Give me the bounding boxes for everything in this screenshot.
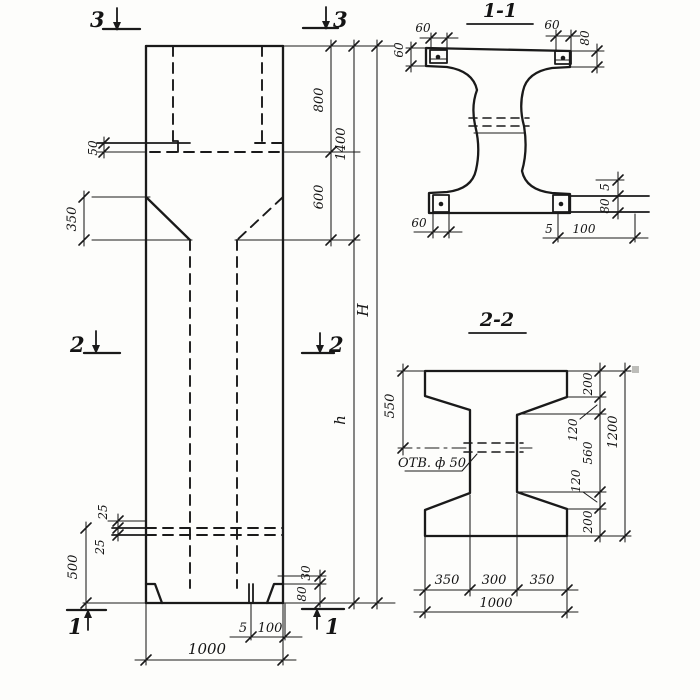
dim-foot-30: 30	[299, 565, 313, 581]
section-marker-1-left: 1	[67, 609, 106, 639]
dim-60-tip-left: 60	[392, 42, 406, 58]
section-2-2-dimension-lines	[398, 363, 630, 617]
hole-label: ОТВ. ф 50	[398, 456, 466, 471]
dim-100-bottom: 100	[573, 222, 596, 236]
section-2-2-title: 2-2	[479, 309, 514, 331]
hole-callout: ОТВ. ф 50	[398, 454, 477, 471]
marker-label: 1	[68, 614, 83, 639]
section-marker-3-right: 3	[303, 7, 348, 32]
marker-label: 1	[325, 614, 340, 639]
dim-total-H: H	[354, 303, 372, 318]
foot-boot-right	[267, 584, 283, 603]
dim-plate-100: 100	[258, 621, 283, 636]
dim-spacer-25-bottom: 25	[93, 539, 107, 555]
section-marker-3-left: 3	[90, 7, 140, 32]
dim-350-right: 350	[530, 573, 555, 588]
dim-200-top: 200	[581, 372, 595, 396]
section-marker-2-left: 2	[69, 331, 120, 357]
dim-300-mid: 300	[482, 573, 507, 588]
dim-width-1000: 1000	[188, 640, 227, 658]
dim-spacer-25-top: 25	[96, 504, 110, 520]
dim-haunch-350: 350	[65, 207, 80, 232]
section-2-2-outline	[425, 371, 567, 536]
dim-step-50: 50	[86, 140, 100, 156]
marker-label: 2	[69, 332, 85, 357]
dim-1200-total: 1200	[606, 415, 621, 448]
leader-120-top	[580, 405, 597, 419]
dim-top-total-1400: 1400	[334, 127, 349, 160]
section-1-1-hole-hidden	[469, 118, 529, 126]
dim-60-top-right: 60	[544, 18, 560, 32]
dim-200-bottom: 200	[581, 510, 595, 534]
dim-mid-600: 600	[312, 185, 327, 210]
haunch-right-edge-hidden	[237, 197, 283, 240]
section-1-1-title: 1-1	[483, 0, 517, 22]
dim-top-800: 800	[312, 88, 327, 113]
dim-plate-5: 5	[239, 621, 247, 636]
dim-120-top: 120	[566, 418, 580, 441]
dim-60-top-left: 60	[415, 21, 431, 35]
section-2-2-extension-lines	[397, 371, 631, 618]
dim-80-tip-right: 80	[578, 30, 592, 46]
section-marker-2-right: 2	[302, 332, 344, 357]
drawing-sheet: 50 350 800 600 1400 H h 25 25 500 30 80 …	[0, 0, 700, 700]
elevation-view: 50 350 800 600 1400 H h 25 25 500 30 80 …	[65, 7, 395, 665]
dim-120-bottom: 120	[569, 469, 583, 492]
section-1-1-outline	[426, 48, 570, 213]
dim-80-edge: 80	[598, 198, 612, 214]
elevation-hidden-lines	[146, 46, 283, 588]
scan-artifact	[632, 366, 639, 373]
dim-5-edge: 5	[598, 183, 612, 191]
dim-base-500: 500	[66, 555, 81, 580]
dim-5-bottom: 5	[545, 222, 553, 236]
section-2-2-view: 2-2 ОТВ. ф 50	[383, 309, 639, 618]
anchor-dot	[561, 56, 566, 61]
foot-boot-left	[146, 584, 162, 603]
drawing-canvas: 50 350 800 600 1400 H h 25 25 500 30 80 …	[0, 0, 700, 700]
dim-60-bottom-left: 60	[411, 216, 427, 230]
section-1-1-view: 1-1	[392, 0, 649, 243]
dim-560-mid: 560	[581, 441, 595, 464]
section-2-2-hole-hidden	[464, 443, 523, 452]
haunch-left-edge	[146, 197, 190, 240]
section-marker-1-right: 1	[302, 608, 344, 639]
anchor-dot	[439, 202, 444, 207]
dim-foot-80: 80	[295, 586, 309, 602]
dim-550-left: 550	[383, 394, 398, 419]
anchor-dot	[559, 202, 564, 207]
dim-1000-total: 1000	[479, 596, 512, 611]
dim-350-left: 350	[435, 573, 460, 588]
anchor-dot	[436, 55, 441, 60]
dim-shaft-h: h	[331, 415, 349, 425]
elevation-outline	[146, 46, 283, 603]
